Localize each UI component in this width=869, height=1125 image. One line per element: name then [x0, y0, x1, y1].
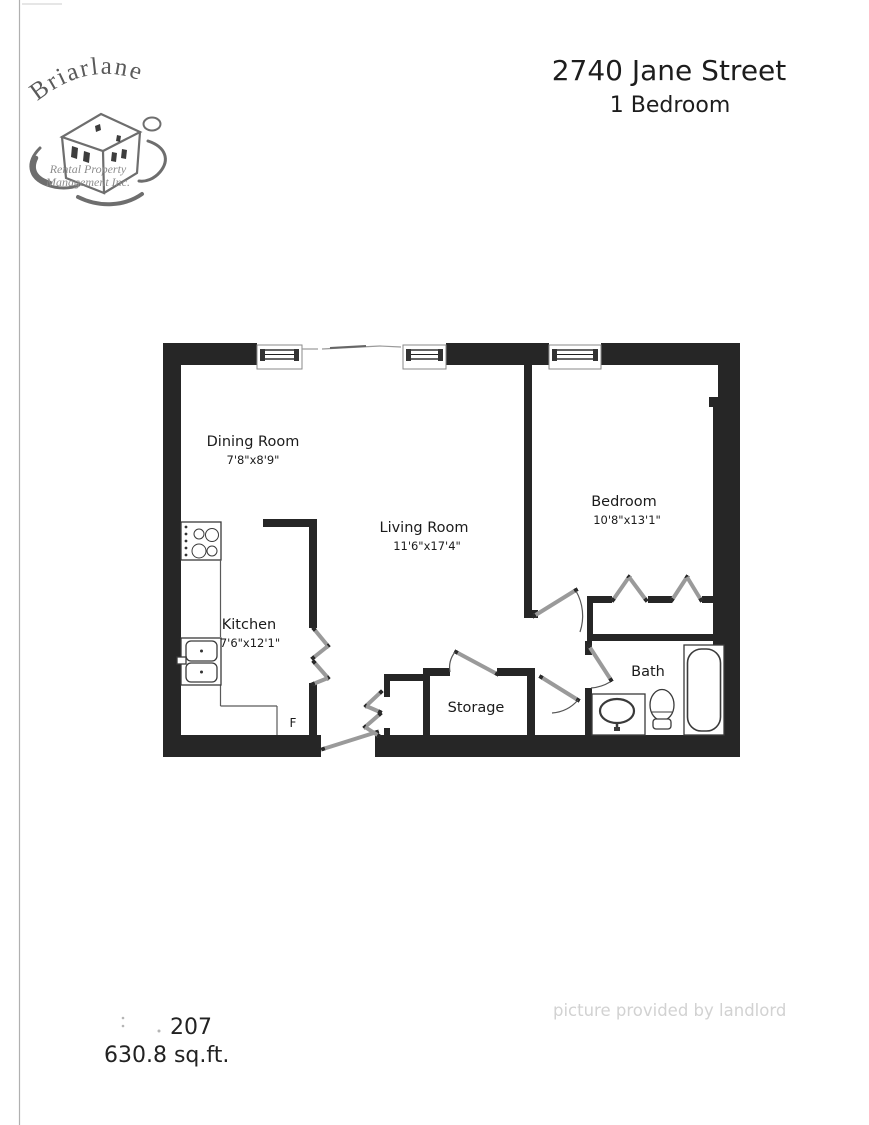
page-title: 2740 Jane Street	[552, 54, 787, 87]
bath-label: Bath	[631, 664, 665, 680]
logo-wordmark: Briarlane	[25, 53, 147, 106]
unit-number: 207	[170, 1015, 212, 1040]
stove-icon	[181, 522, 221, 560]
floorplan-drawing: Briarlane Rental Property Management Inc…	[0, 0, 869, 1125]
bedroom-label: Bedroom	[591, 494, 657, 510]
bedroom-dims: 10'8"x13'1"	[593, 513, 661, 527]
scanned-floorplan-sheet: Briarlane Rental Property Management Inc…	[0, 0, 869, 1125]
balcony-opening	[302, 346, 401, 349]
window	[403, 345, 446, 369]
bath-door	[589, 646, 611, 688]
briarlane-logo: Briarlane Rental Property Management Inc…	[25, 53, 166, 204]
living-room-dims: 11'6"x17'4"	[393, 539, 461, 553]
watermark-text: picture provided by landlord	[553, 1001, 786, 1020]
window	[549, 345, 601, 369]
house-sketch-icon	[31, 114, 165, 204]
toilet-icon	[650, 690, 674, 730]
windows	[257, 345, 601, 369]
floor-plan: Dining Room 7'8"x8'9" Living Room 11'6"x…	[163, 343, 740, 757]
logo-tagline-2: Management Inc.	[45, 175, 130, 189]
fridge-label: F	[290, 716, 297, 730]
dining-room-label: Dining Room	[207, 434, 300, 450]
dining-room-dims: 7'8"x8'9"	[227, 453, 280, 467]
storage-door	[450, 652, 497, 674]
living-room-label: Living Room	[379, 520, 468, 536]
entry-door	[323, 732, 377, 749]
kitchen-dims: 7'6"x12'1"	[220, 636, 280, 650]
logo-tagline-1: Rental Property	[49, 162, 127, 176]
storage-label: Storage	[448, 700, 505, 716]
hall-door	[541, 677, 578, 713]
kitchen-label: Kitchen	[222, 617, 277, 633]
entry-closet-bifold-door	[365, 692, 381, 736]
bathtub-icon	[684, 645, 724, 735]
page-subtitle: 1 Bedroom	[610, 93, 731, 118]
bathroom-vanity-icon	[592, 694, 645, 735]
kitchen-sink-icon	[177, 638, 221, 685]
window	[257, 345, 302, 369]
unit-area: 630.8 sq.ft.	[104, 1043, 229, 1068]
kitchen-bifold-door	[313, 629, 328, 684]
bedroom-door	[534, 590, 583, 632]
room-labels: Dining Room 7'8"x8'9" Living Room 11'6"x…	[207, 434, 665, 730]
